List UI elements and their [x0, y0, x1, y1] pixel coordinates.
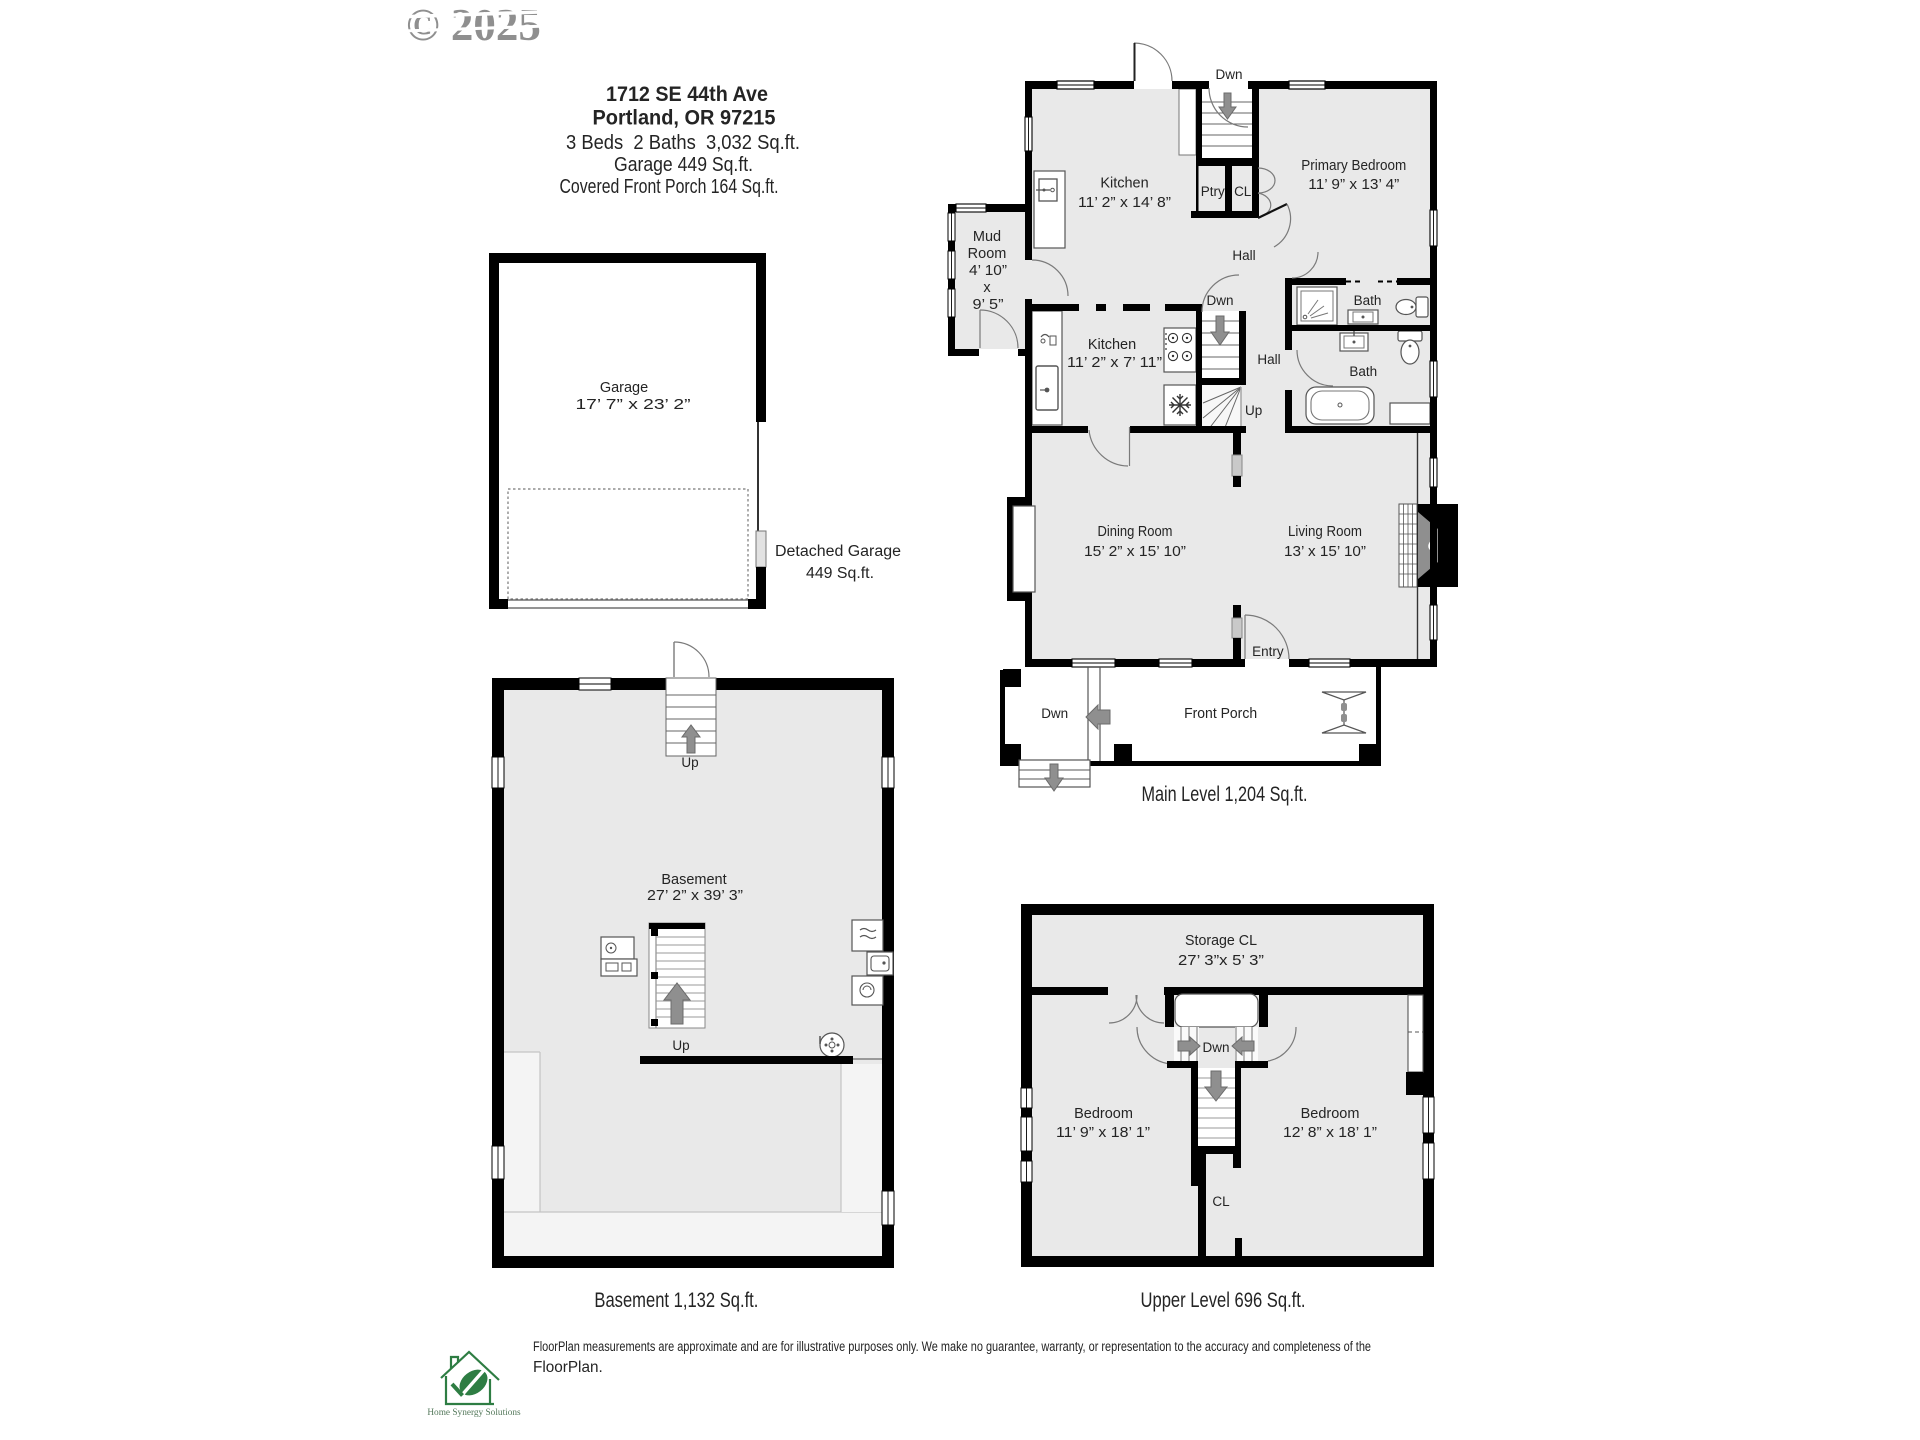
svg-text:11’ 9” x 18’ 1”: 11’ 9” x 18’ 1” — [1056, 1125, 1150, 1141]
svg-text:12’ 8” x 18’ 1”: 12’ 8” x 18’ 1” — [1283, 1125, 1377, 1141]
svg-text:Basement 1,132 Sq.ft.: Basement 1,132 Sq.ft. — [594, 1289, 758, 1312]
svg-text:CL: CL — [1212, 1194, 1230, 1209]
svg-text:9’ 5”: 9’ 5” — [973, 297, 1004, 313]
svg-text:Dwn: Dwn — [1041, 706, 1068, 721]
svg-text:Dwn: Dwn — [1215, 67, 1242, 82]
svg-text:1712 SE 44th Ave: 1712 SE 44th Ave — [606, 82, 768, 106]
svg-text:449 Sq.ft.: 449 Sq.ft. — [806, 565, 874, 582]
svg-text:Bedroom: Bedroom — [1301, 1106, 1360, 1122]
svg-text:13’ x 15’ 10”: 13’ x 15’ 10” — [1284, 544, 1366, 560]
svg-text:Detached Garage: Detached Garage — [775, 543, 901, 560]
svg-text:CL: CL — [1234, 184, 1252, 199]
svg-text:Dwn: Dwn — [1206, 293, 1233, 308]
svg-text:Home Synergy Solutions: Home Synergy Solutions — [427, 1408, 521, 1418]
svg-text:Entry: Entry — [1252, 644, 1284, 659]
svg-text:Upper Level 696 Sq.ft.: Upper Level 696 Sq.ft. — [1141, 1289, 1306, 1312]
svg-text:15’ 2” x 15’ 10”: 15’ 2” x 15’ 10” — [1084, 544, 1186, 560]
svg-text:Storage CL: Storage CL — [1185, 933, 1257, 949]
svg-text:Bath: Bath — [1354, 293, 1382, 308]
svg-text:Living Room: Living Room — [1288, 524, 1362, 540]
svg-text:Hall: Hall — [1232, 248, 1255, 263]
svg-text:Room: Room — [968, 246, 1007, 262]
svg-text:Ptry: Ptry — [1201, 184, 1225, 199]
svg-text:11’ 9” x 13’ 4”: 11’ 9” x 13’ 4” — [1308, 177, 1399, 193]
svg-text:Up: Up — [1245, 403, 1262, 418]
svg-text:FloorPlan measurements are app: FloorPlan measurements are approximate a… — [533, 1339, 1371, 1354]
svg-text:Dwn: Dwn — [1202, 1040, 1229, 1055]
svg-text:27’ 2” x 39’ 3”: 27’ 2” x 39’ 3” — [647, 888, 743, 904]
svg-text:27’ 3”x 5’ 3”: 27’ 3”x 5’ 3” — [1178, 953, 1264, 969]
svg-text:17’ 7” x 23’ 2”: 17’ 7” x 23’ 2” — [576, 397, 691, 413]
svg-text:Front Porch: Front Porch — [1184, 706, 1257, 722]
svg-text:4’ 10”: 4’ 10” — [969, 263, 1007, 279]
svg-text:x: x — [983, 280, 991, 296]
svg-text:11’ 2” x 14’ 8”: 11’ 2” x 14’ 8” — [1078, 195, 1171, 211]
svg-text:Garage 449 Sq.ft.: Garage 449 Sq.ft. — [614, 154, 753, 176]
svg-text:Up: Up — [672, 1038, 689, 1053]
svg-text:Basement: Basement — [661, 872, 726, 888]
svg-text:Kitchen: Kitchen — [1088, 337, 1136, 353]
svg-text:Portland, OR 97215: Portland, OR 97215 — [593, 106, 776, 130]
svg-text:Bedroom: Bedroom — [1074, 1106, 1133, 1122]
svg-text:Garage: Garage — [600, 380, 648, 396]
svg-text:Dining Room: Dining Room — [1098, 524, 1173, 540]
svg-text:Hall: Hall — [1257, 352, 1280, 367]
svg-text:Primary Bedroom: Primary Bedroom — [1301, 158, 1406, 174]
svg-text:© 2025: © 2025 — [406, 0, 541, 50]
svg-text:Bath: Bath — [1349, 364, 1377, 379]
svg-text:11’ 2” x 7’ 11”: 11’ 2” x 7’ 11” — [1067, 355, 1162, 371]
svg-text:Kitchen: Kitchen — [1100, 176, 1148, 192]
svg-text:3 Beds 2 Baths 3,032 Sq.ft.: 3 Beds 2 Baths 3,032 Sq.ft. — [566, 132, 800, 154]
svg-text:Up: Up — [681, 755, 698, 770]
svg-text:Main Level 1,204 Sq.ft.: Main Level 1,204 Sq.ft. — [1142, 783, 1308, 806]
svg-text:Mud: Mud — [973, 229, 1001, 245]
svg-text:Covered Front Porch 164 Sq.ft.: Covered Front Porch 164 Sq.ft. — [560, 176, 779, 198]
svg-text:FloorPlan.: FloorPlan. — [533, 1359, 603, 1376]
